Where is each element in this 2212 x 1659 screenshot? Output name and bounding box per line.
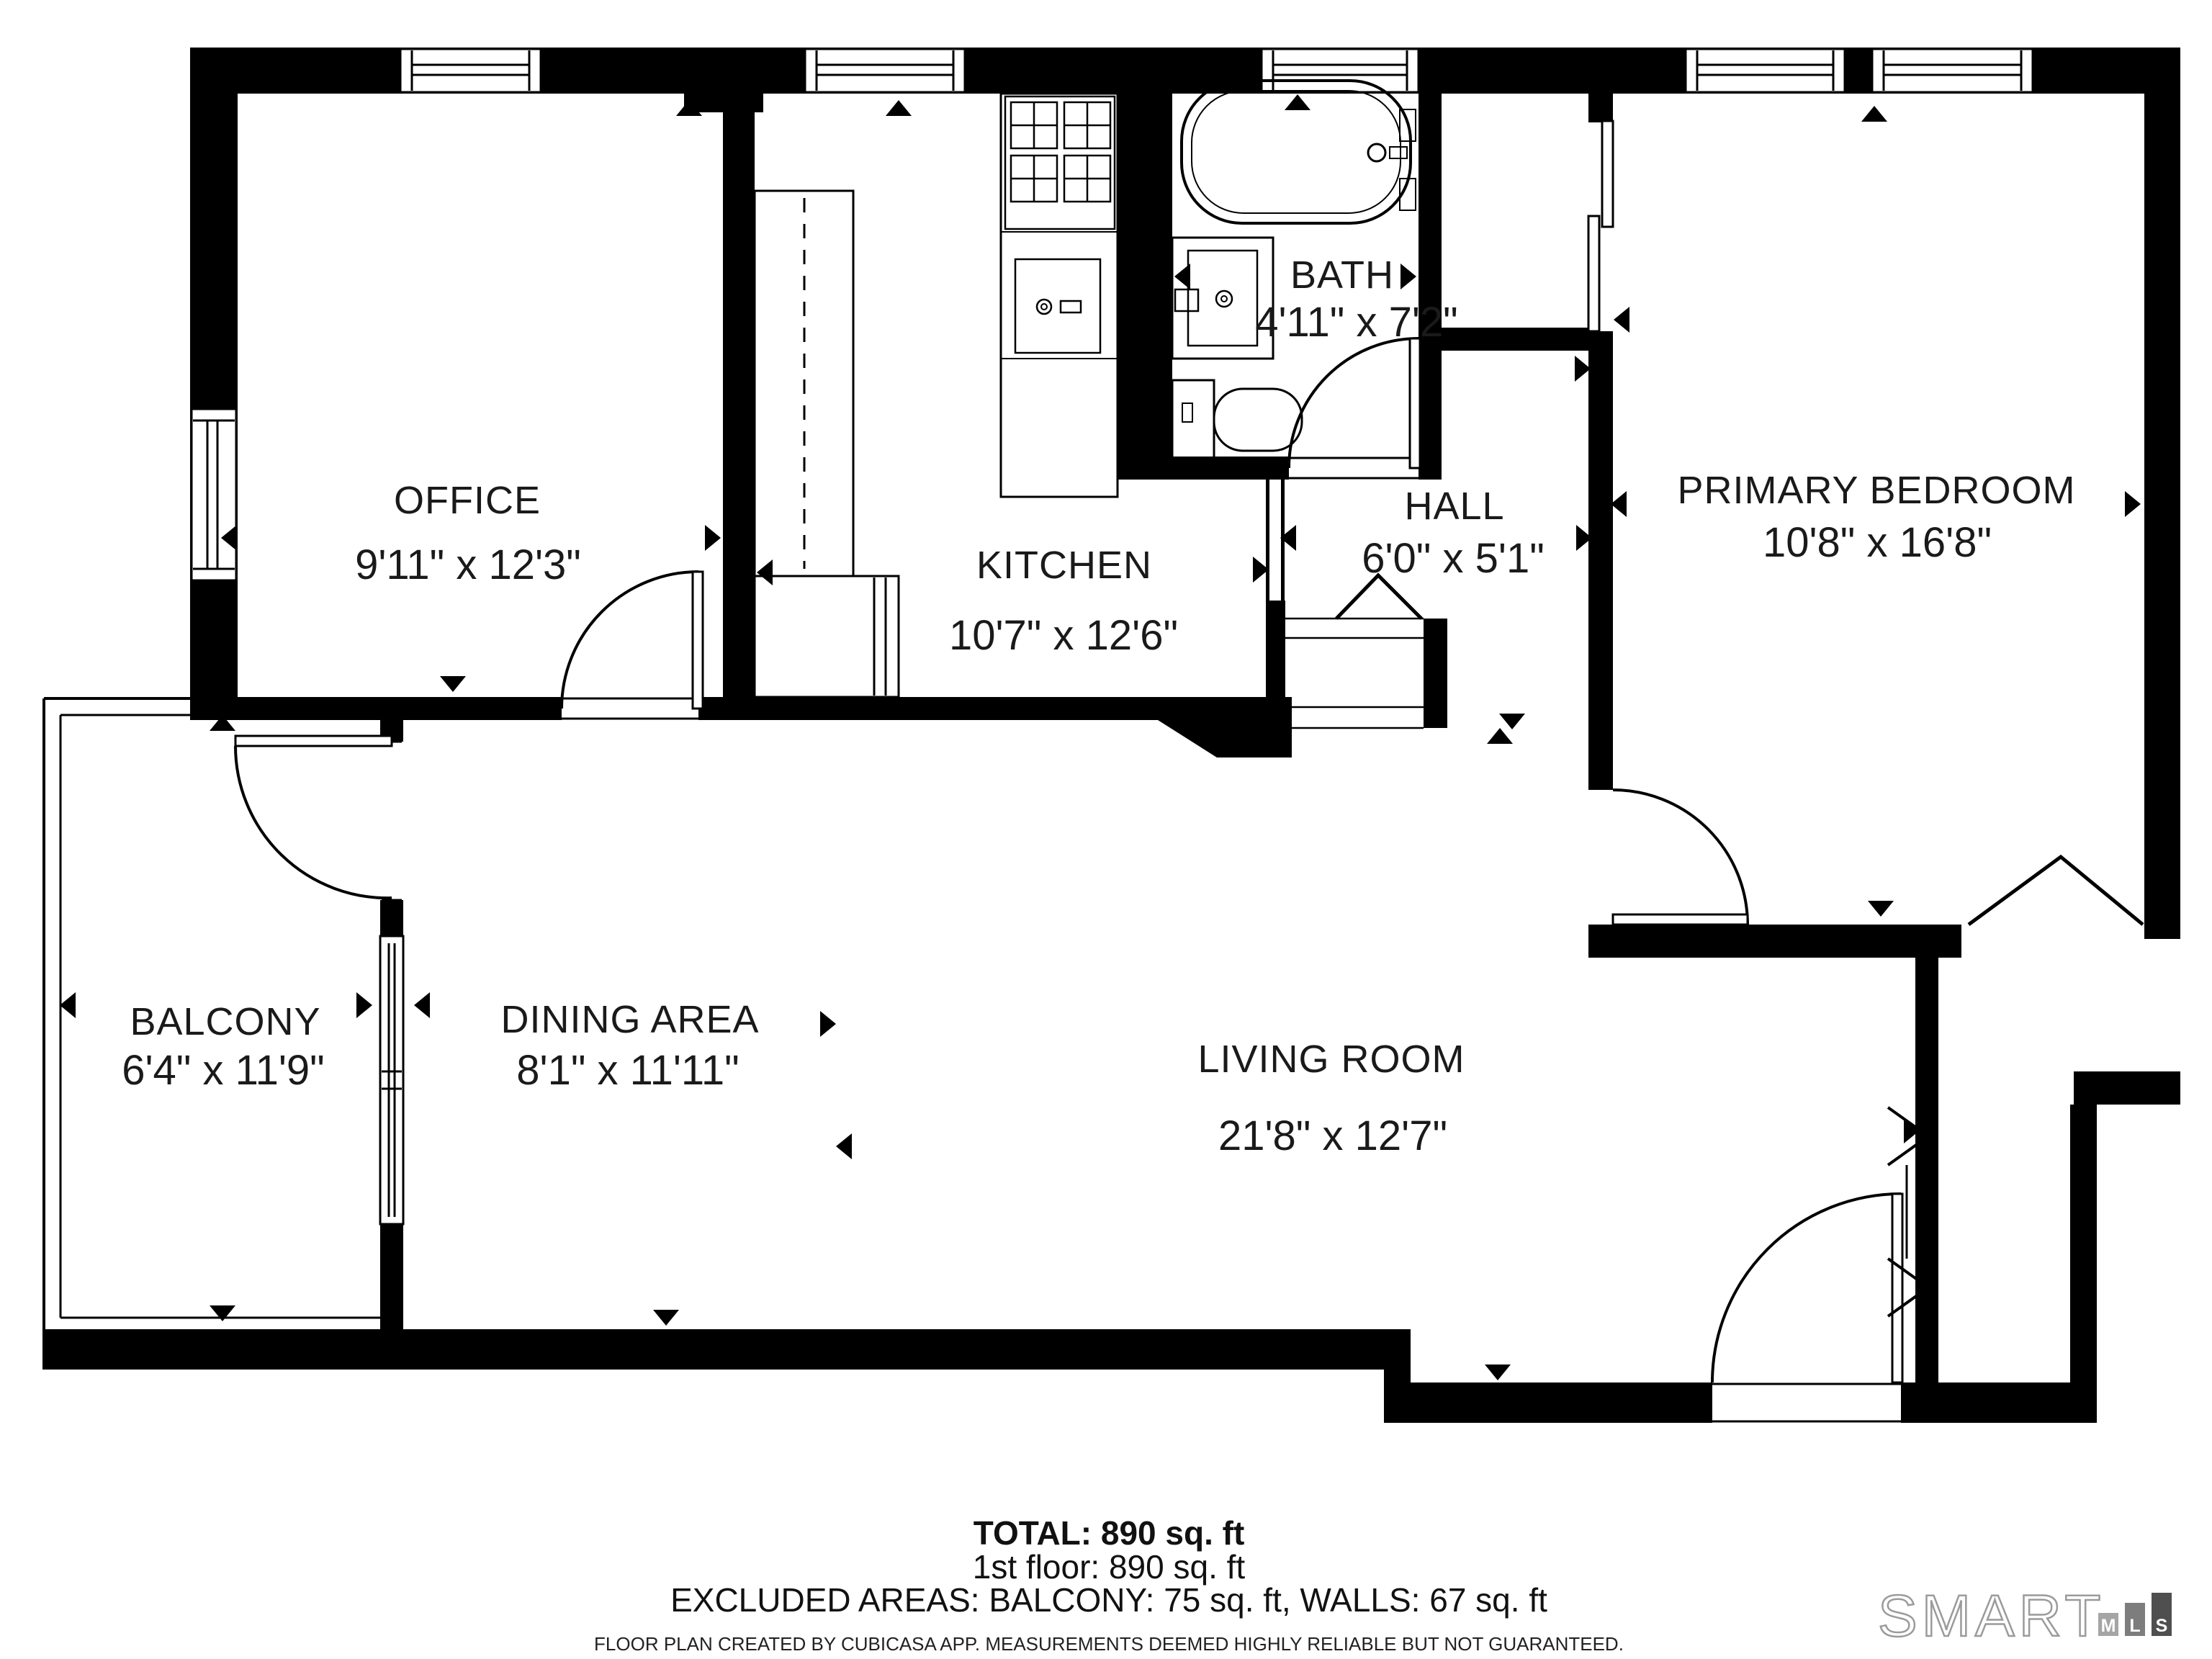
kitchen-label: KITCHEN xyxy=(976,544,1152,587)
kitchen-dims: 10'7" x 12'6" xyxy=(949,612,1178,659)
excluded-area-text: EXCLUDED AREAS: BALCONY: 75 sq. ft, WALL… xyxy=(670,1581,1547,1619)
mls-bar-chart-icon: M L S xyxy=(2098,1593,2172,1636)
floor-plan-canvas: OFFICE 9'11" x 12'3" KITCHEN 10'7" x 12'… xyxy=(0,0,2212,1659)
smartmls-logo: SMART M L S xyxy=(1878,1583,2172,1649)
dining-dims: 8'1" x 11'11" xyxy=(516,1047,739,1094)
stove-icon xyxy=(1005,96,1115,229)
living-label: LIVING ROOM xyxy=(1197,1038,1465,1081)
mls-letter-s: S xyxy=(2156,1616,2168,1636)
floor-plan-page: OFFICE 9'11" x 12'3" KITCHEN 10'7" x 12'… xyxy=(0,0,2212,1659)
entry-door xyxy=(1712,1194,1902,1421)
kitchen-sink-icon xyxy=(1015,259,1100,353)
area-summary: TOTAL: 890 sq. ft 1st floor: 890 sq. ft … xyxy=(594,1514,1624,1655)
bedroom-opening-chevron-door xyxy=(1969,857,2143,925)
balcony-dims: 6'4" x 11'9" xyxy=(122,1047,325,1094)
interior-walls xyxy=(190,48,2093,1382)
bath-door xyxy=(1289,338,1420,478)
toilet-icon xyxy=(1172,380,1302,458)
office-door xyxy=(562,572,703,719)
total-area-text: TOTAL: 890 sq. ft xyxy=(974,1514,1245,1552)
bedroom-dims: 10'8" x 16'8" xyxy=(1763,519,1992,566)
office-window-top xyxy=(400,49,541,92)
bedroom-window-right xyxy=(1872,49,2033,92)
bedroom-door xyxy=(1613,790,1748,925)
bedroom-window-left xyxy=(1686,49,1845,92)
bedroom-label: PRIMARY BEDROOM xyxy=(1677,469,2075,512)
kitchen-window xyxy=(805,49,965,92)
bath-label: BATH xyxy=(1290,253,1394,297)
smart-logo-wordmark: SMART xyxy=(1878,1583,2105,1649)
office-window-left xyxy=(192,409,236,580)
bath-dims: 4'11" x 7'2" xyxy=(1255,299,1458,346)
office-label: OFFICE xyxy=(394,479,541,522)
living-dims: 21'8" x 12'7" xyxy=(1218,1112,1447,1159)
doors xyxy=(235,121,2143,1421)
hall-closet-bifold-door xyxy=(1285,575,1424,728)
office-dims: 9'11" x 12'3" xyxy=(355,541,581,588)
disclaimer-text: FLOOR PLAN CREATED BY CUBICASA APP. MEAS… xyxy=(594,1633,1624,1655)
bedroom-closet-sliding-door xyxy=(1588,121,1613,331)
bath-window xyxy=(1262,49,1419,92)
hall-label: HALL xyxy=(1404,485,1504,528)
mls-letter-l: L xyxy=(2129,1616,2140,1636)
balcony-window xyxy=(380,936,403,1224)
floor-area-text: 1st floor: 890 sq. ft xyxy=(973,1548,1246,1586)
balcony-door xyxy=(235,736,402,900)
mls-letter-m: M xyxy=(2101,1616,2116,1636)
dining-label: DINING AREA xyxy=(500,998,759,1041)
balcony-label: BALCONY xyxy=(130,1000,320,1043)
hall-dims: 6'0" x 5'1" xyxy=(1362,535,1545,582)
kitchen-fixtures xyxy=(755,94,1118,697)
kitchen-counter-icon xyxy=(755,94,1118,697)
